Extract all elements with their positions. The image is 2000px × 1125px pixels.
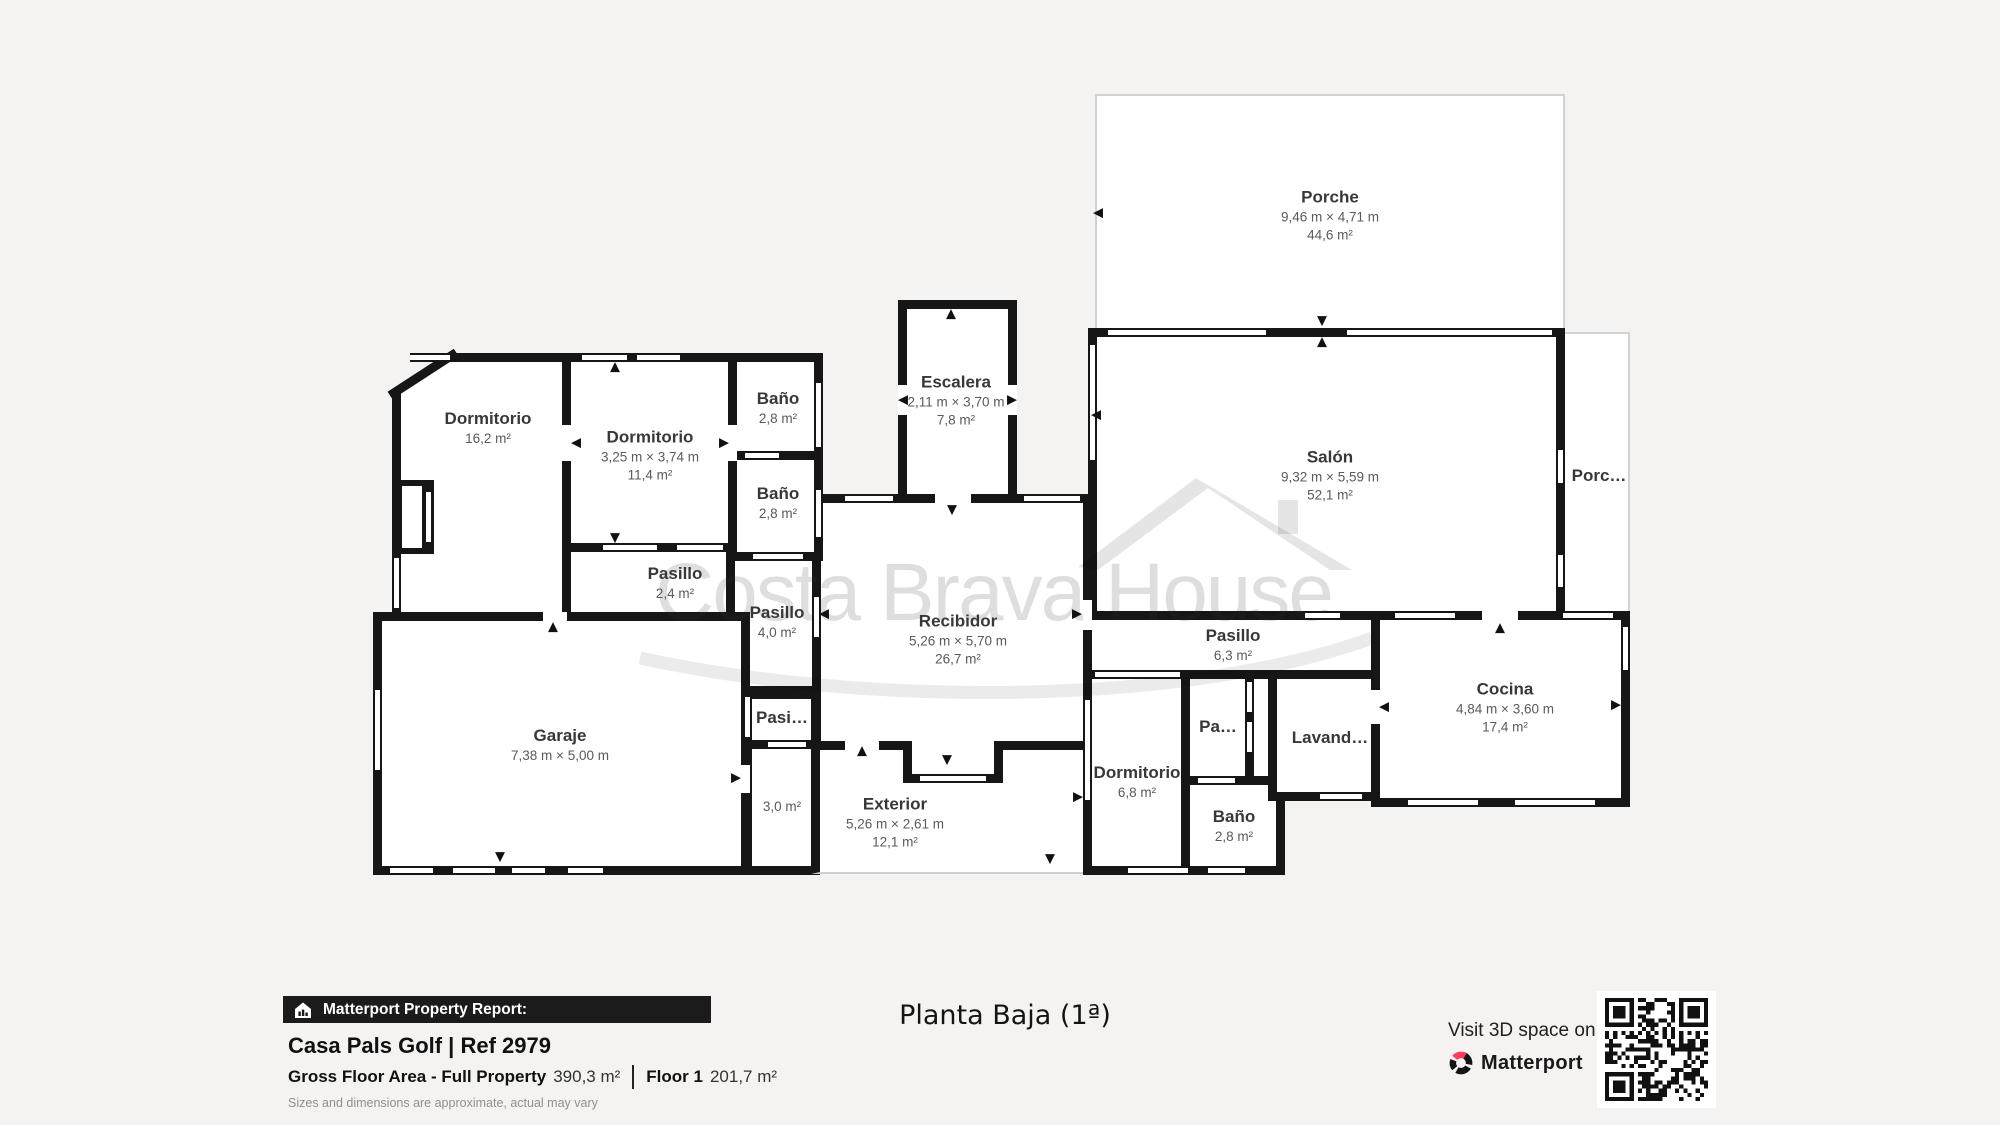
door-opening [562, 425, 571, 461]
window [1128, 866, 1188, 875]
window [814, 490, 823, 537]
label-salon: Salón 9,32 m × 5,59 m 52,1 m² [1281, 446, 1379, 503]
window [753, 552, 803, 561]
label-porche-lateral: Porc… [1572, 465, 1627, 487]
window [768, 740, 806, 749]
door-arrow-up-icon: ▲ [610, 361, 620, 374]
door-arrow-up-icon: ▲ [857, 745, 867, 758]
window [512, 866, 545, 875]
label-bano-3: Baño 2,8 m² [1213, 806, 1256, 846]
door-arrow-left-icon: ◀ [1091, 409, 1101, 422]
label-porche: Porche 9,46 m × 4,71 m 44,6 m² [1281, 186, 1379, 243]
gross-area-label: Gross Floor Area - Full Property [288, 1067, 546, 1087]
window [392, 558, 401, 608]
window [677, 543, 723, 552]
room-dims: 9,46 m × 4,71 m [1281, 209, 1379, 227]
label-lavanderia: Lavand… [1292, 727, 1369, 749]
window [453, 866, 495, 875]
window [1347, 328, 1552, 337]
floor-label: Floor 1 [646, 1067, 703, 1087]
door-arrow-down-icon: ▼ [1317, 315, 1327, 328]
door-opening [741, 765, 750, 793]
room-area: 3,0 m² [763, 798, 801, 816]
window [1621, 627, 1630, 670]
gross-area-value: 390,3 m² [553, 1067, 620, 1087]
report-badge-text: Matterport Property Report: [323, 1001, 527, 1019]
window [1395, 611, 1455, 620]
door-arrow-down-icon: ▼ [947, 504, 957, 517]
window [1245, 722, 1254, 752]
room-dims: 9,32 m × 5,59 m [1281, 469, 1379, 487]
visit-text: Visit 3D space on [1448, 1020, 1596, 1042]
property-title: Casa Pals Golf | Ref 2979 [288, 1033, 551, 1059]
room-dims: 3,25 m × 3,74 m [601, 449, 699, 467]
label-pasillo-4: Pasillo 6,3 m² [1206, 625, 1261, 665]
room-name: Porche [1281, 186, 1379, 208]
room-area: 2,4 m² [648, 585, 703, 603]
room-area: 44,6 m² [1281, 226, 1379, 244]
floor-title: Planta Baja (1ª) [755, 1000, 1255, 1031]
room-name: Dormitorio [1094, 762, 1181, 784]
room-area: 11,4 m² [601, 466, 699, 484]
entrance-step-window [920, 774, 986, 783]
window [1320, 792, 1362, 801]
window [743, 697, 752, 737]
door-arrow-down-icon: ▼ [495, 851, 505, 864]
window [1408, 798, 1478, 807]
label-cocina: Cocina 4,84 m × 3,60 m 17,4 m² [1456, 678, 1554, 735]
window [814, 383, 823, 447]
room-area: 7,8 m² [908, 411, 1005, 429]
window [1208, 866, 1245, 875]
door-opening [1482, 611, 1518, 620]
room-name: Baño [757, 483, 800, 505]
window [373, 690, 382, 770]
window [582, 353, 627, 362]
room-name: Baño [757, 388, 800, 410]
room-dims: 5,26 m × 2,61 m [846, 816, 944, 834]
window [1083, 700, 1092, 800]
bay-interior [402, 486, 422, 548]
room-area: 6,8 m² [1094, 784, 1181, 802]
area-summary: Gross Floor Area - Full Property 390,3 m… [288, 1065, 777, 1089]
room-area: 12,1 m² [846, 833, 944, 851]
room-area: 4,0 m² [750, 624, 805, 642]
room-area: 6,3 m² [1206, 647, 1261, 665]
window [1556, 555, 1565, 587]
room-area: 26,7 m² [909, 650, 1007, 668]
room-name: Baño [1213, 806, 1256, 828]
floor-value: 201,7 m² [710, 1067, 777, 1087]
label-pasillo-2: Pasillo 4,0 m² [750, 602, 805, 642]
divider [632, 1065, 634, 1089]
door-opening [728, 425, 737, 461]
window [1088, 345, 1097, 460]
label-garaje: Garaje 7,38 m × 5,00 m [511, 725, 609, 765]
window [637, 353, 680, 362]
room-dims: 5,26 m × 5,70 m [909, 633, 1007, 651]
visit-3d-block: Visit 3D space on Matterport [1448, 1020, 1596, 1076]
window [1563, 611, 1613, 620]
room-name: Pasi… [756, 707, 808, 729]
matterport-wordmark: Matterport [1481, 1052, 1583, 1075]
window [390, 866, 433, 875]
room-dims: 7,38 m × 5,00 m [511, 747, 609, 765]
door-arrow-up-icon: ▲ [548, 621, 558, 634]
door-arrow-up-icon: ▲ [946, 308, 956, 321]
label-pasillo-1: Pasillo 2,4 m² [648, 563, 703, 603]
window [410, 353, 450, 362]
room-name: Pa… [1199, 716, 1237, 738]
door-opening [1083, 600, 1092, 630]
room-area: 17,4 m² [1456, 718, 1554, 736]
label-pasillo-3b: 3,0 m² [763, 798, 801, 816]
qr-code[interactable] [1597, 991, 1716, 1108]
door-arrow-left-icon: ◀ [1379, 701, 1389, 714]
bay-window [424, 492, 433, 542]
door-arrow-left-icon: ◀ [1093, 207, 1103, 220]
floorplan-page: ▼ ▲ ◀ ▲ ◀ ▶ ▼ ▲ ◀ ▶ ▼ ◀ ▶ ▼ ▲ ▶ ▼ ▲ ▼ ▶ … [0, 0, 2000, 1125]
door-arrow-up-icon: ▲ [1495, 622, 1505, 635]
room-dims: 2,11 m × 3,70 m [908, 394, 1005, 412]
room-name: Salón [1281, 446, 1379, 468]
window [1245, 682, 1254, 712]
room-name: Pasillo [1206, 625, 1261, 647]
matterport-logo-icon [1448, 1050, 1474, 1076]
door-arrow-down-icon: ▼ [610, 532, 620, 545]
disclaimer-text: Sizes and dimensions are approximate, ac… [288, 1096, 598, 1110]
window [1198, 776, 1235, 785]
house-icon [293, 1001, 313, 1019]
report-badge-bar: Matterport Property Report: [283, 996, 711, 1023]
room-name: Cocina [1456, 678, 1554, 700]
label-recibidor: Recibidor 5,26 m × 5,70 m 26,7 m² [909, 610, 1007, 667]
label-exterior: Exterior 5,26 m × 2,61 m 12,1 m² [846, 793, 944, 850]
label-bano-2: Baño 2,8 m² [757, 483, 800, 523]
room-name: Dormitorio [601, 426, 699, 448]
window [1024, 494, 1080, 503]
window [745, 451, 779, 460]
label-pasillo-3: Pasi… [756, 707, 808, 729]
room-area: 52,1 m² [1281, 486, 1379, 504]
door-arrow-left-icon: ◀ [819, 608, 829, 621]
room-area: 2,8 m² [1213, 828, 1256, 846]
door-arrow-right-icon: ▶ [1073, 791, 1083, 804]
window [1556, 450, 1565, 483]
window [1515, 798, 1595, 807]
room-name: Dormitorio [445, 408, 532, 430]
window [1095, 670, 1180, 679]
room-dims: 4,84 m × 3,60 m [1456, 701, 1554, 719]
room-name: Pasillo [648, 563, 703, 585]
label-dormitorio-1: Dormitorio 16,2 m² [445, 408, 532, 448]
room-area: 2,8 m² [757, 505, 800, 523]
door-arrow-right-icon: ▶ [719, 437, 729, 450]
room-area: 2,8 m² [757, 410, 800, 428]
door-arrow-down-icon: ▼ [942, 754, 952, 767]
room-area: 16,2 m² [445, 430, 532, 448]
room-name: Escalera [908, 371, 1005, 393]
room-name: Garaje [511, 725, 609, 747]
label-dormitorio-2: Dormitorio 3,25 m × 3,74 m 11,4 m² [601, 426, 699, 483]
window [1305, 611, 1340, 620]
matterport-brand[interactable]: Matterport [1448, 1050, 1596, 1076]
room-name: Porc… [1572, 465, 1627, 487]
room-name: Pasillo [750, 602, 805, 624]
window [568, 866, 603, 875]
room-name: Lavand… [1292, 727, 1369, 749]
door-arrow-left-icon: ◀ [571, 437, 581, 450]
entrance-step-opening [912, 741, 994, 774]
door-arrow-right-icon: ▶ [1007, 394, 1017, 407]
door-arrow-left-icon: ◀ [898, 394, 908, 407]
window [845, 494, 893, 503]
door-arrow-right-icon: ▶ [1072, 608, 1082, 621]
door-arrow-up-icon: ▲ [1317, 336, 1327, 349]
label-escalera: Escalera 2,11 m × 3,70 m 7,8 m² [908, 371, 1005, 428]
door-arrow-right-icon: ▶ [1611, 699, 1621, 712]
window [1108, 328, 1266, 337]
label-pasillo-5: Pa… [1199, 716, 1237, 738]
label-dormitorio-3: Dormitorio 6,8 m² [1094, 762, 1181, 802]
door-arrow-down-icon: ▼ [1045, 853, 1055, 866]
room-name: Exterior [846, 793, 944, 815]
door-arrow-right-icon: ▶ [731, 772, 741, 785]
label-bano-1: Baño 2,8 m² [757, 388, 800, 428]
room-name: Recibidor [909, 610, 1007, 632]
